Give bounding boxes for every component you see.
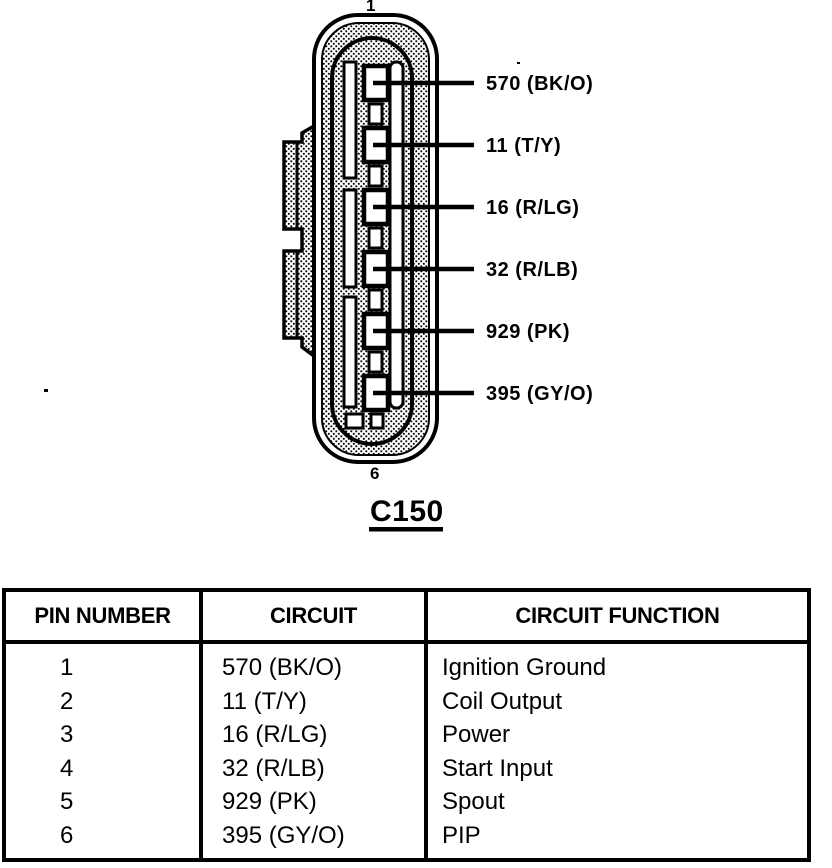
bracket-outline [284,126,314,356]
wire-label-5: 929 (PK) [486,321,570,343]
function-1: Ignition Ground [428,651,807,685]
circuit-4: 32 (R/LB) [203,752,424,786]
key-slot [344,62,356,178]
pin-number-column: 1 2 3 4 5 6 [6,644,203,858]
scanned-wiring-diagram-page: 570 (BK/O) 11 (T/Y) 16 (R/LG) 32 (R/LB) … [0,0,832,868]
key-notch [371,414,383,428]
wire-label-6: 395 (GY/O) [486,383,593,405]
wire-label-2: 11 (T/Y) [486,135,561,157]
header-pin-number: PIN NUMBER [6,592,203,640]
pin-number-6: 6 [6,819,199,853]
circuit-1: 570 (BK/O) [203,651,424,685]
connector-id-label: C150 [370,495,444,528]
spacer-slot [369,104,382,124]
circuit-column: 570 (BK/O) 11 (T/Y) 16 (R/LG) 32 (R/LB) … [203,644,428,858]
function-3: Power [428,718,807,752]
pin-table: PIN NUMBER CIRCUIT CIRCUIT FUNCTION 1 2 … [2,588,811,862]
function-5: Spout [428,785,807,819]
connector-id-underline [369,527,443,532]
wire-label-3: 16 (R/LG) [486,197,579,219]
wire-label-1: 570 (BK/O) [486,73,593,95]
spacer-slot [369,228,382,248]
function-2: Coil Output [428,685,807,719]
header-circuit-function: CIRCUIT FUNCTION [428,592,807,640]
circuit-6: 395 (GY/O) [203,819,424,853]
mounting-bracket [284,126,314,356]
wire-label-4: 32 (R/LB) [486,259,578,281]
scan-speck [44,389,48,392]
circuit-3: 16 (R/LG) [203,718,424,752]
function-4: Start Input [428,752,807,786]
function-6: PIP [428,819,807,853]
pin-number-2: 2 [6,685,199,719]
key-slot-foot [346,414,363,428]
spacer-slot [369,352,382,372]
circuit-function-column: Ignition Ground Coil Output Power Start … [428,644,807,858]
pin-number-5: 5 [6,785,199,819]
key-slot [344,190,356,287]
header-circuit: CIRCUIT [203,592,428,640]
connector-diagram: 570 (BK/O) 11 (T/Y) 16 (R/LG) 32 (R/LB) … [0,0,832,560]
wire-labels: 570 (BK/O) 11 (T/Y) 16 (R/LG) 32 (R/LB) … [486,73,593,405]
pin-6-index: 6 [370,464,379,483]
spacer-slot [369,166,382,186]
pin-number-4: 4 [6,752,199,786]
key-slot [344,297,356,407]
circuit-5: 929 (PK) [203,785,424,819]
spacer-slot [369,290,382,310]
pin-table-body: 1 2 3 4 5 6 570 (BK/O) 11 (T/Y) 16 (R/LG… [6,644,807,858]
pin-table-header: PIN NUMBER CIRCUIT CIRCUIT FUNCTION [6,592,807,644]
scan-speck [517,62,520,64]
connector-rail [390,62,403,408]
pin-number-3: 3 [6,718,199,752]
circuit-2: 11 (T/Y) [203,685,424,719]
pin-1-index: 1 [366,0,375,15]
pin-number-1: 1 [6,651,199,685]
